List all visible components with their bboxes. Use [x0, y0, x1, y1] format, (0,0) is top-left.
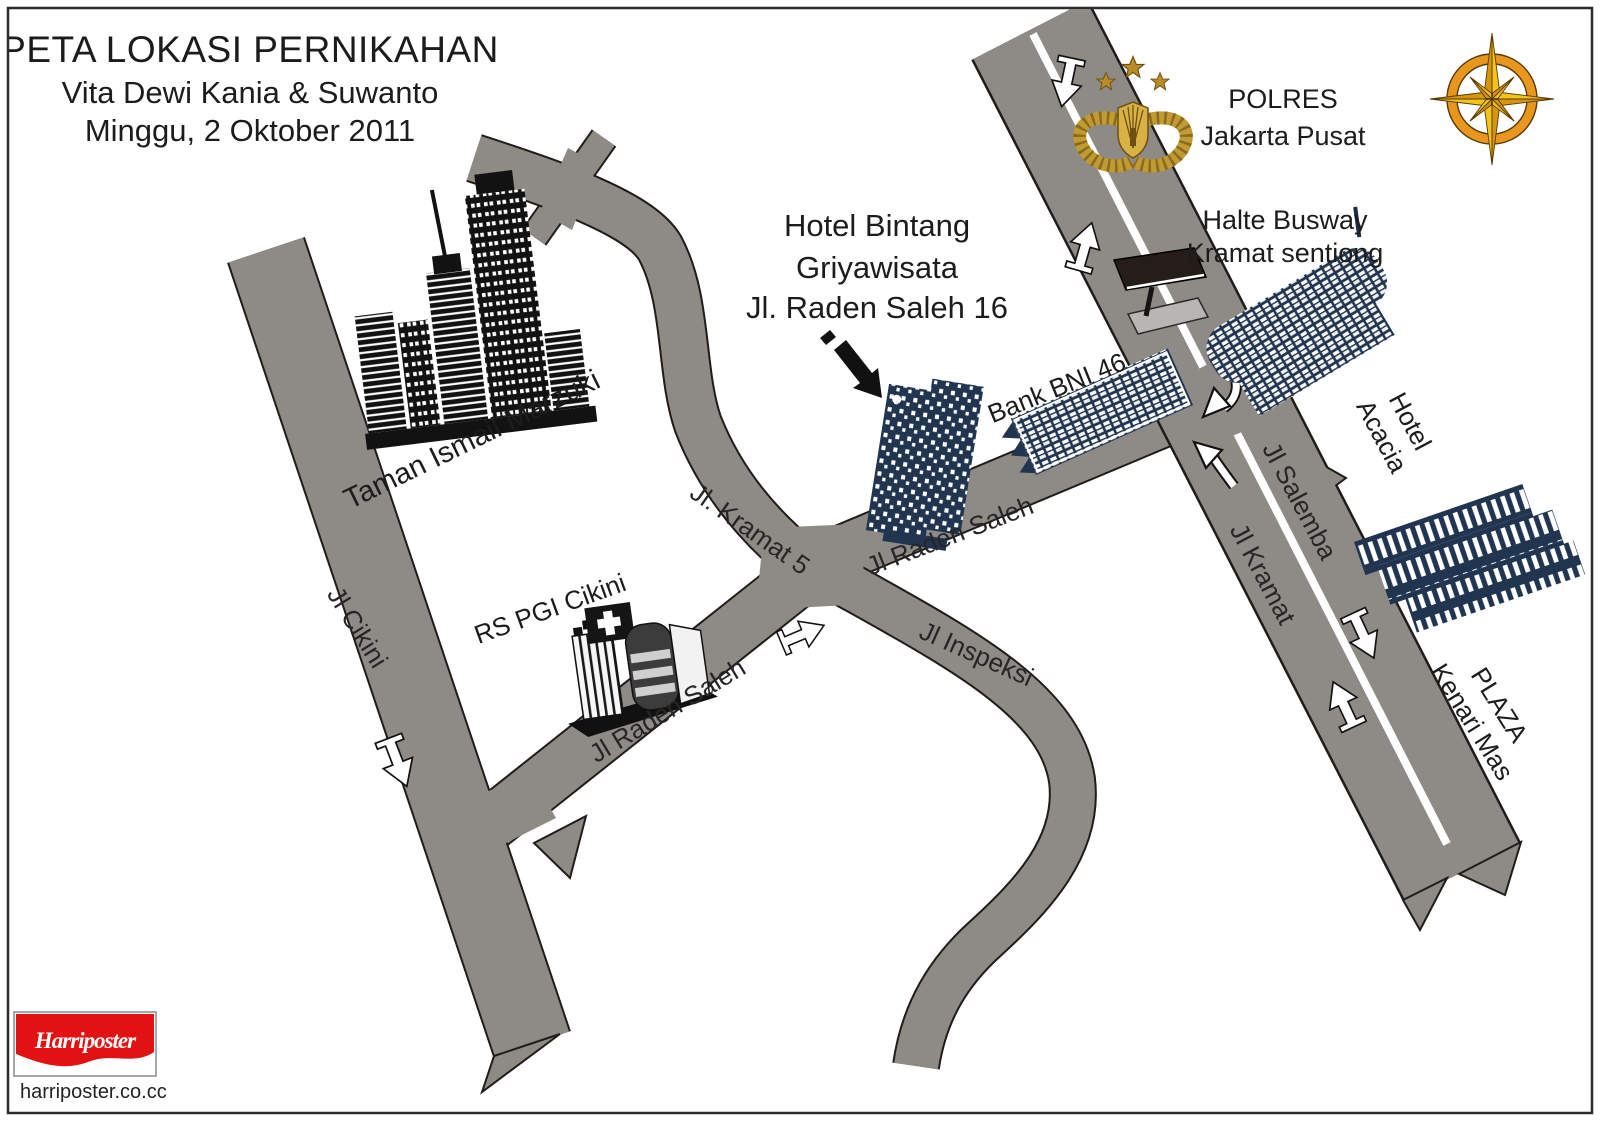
hotel-bintang-label-3: Jl. Raden Saleh 16 — [746, 290, 1008, 325]
hotel-bintang-label-2: Griyawisata — [796, 250, 959, 285]
website-url: harriposter.co.cc — [20, 1081, 167, 1103]
polres-label-1: POLRES — [1228, 84, 1338, 114]
title-line-1: PETA LOKASI PERNIKAHAN — [1, 29, 499, 70]
halte-busway-label-2: Kramat sentiong — [1187, 238, 1384, 268]
polres-label-2: Jakarta Pusat — [1200, 121, 1366, 151]
wedding-location-map: PETA LOKASI PERNIKAHAN Vita Dewi Kania &… — [0, 0, 1600, 1121]
harriposter-logo: Harriposter harriposter.co.cc — [14, 1012, 167, 1103]
title-line-3: Minggu, 2 Oktober 2011 — [85, 113, 415, 148]
halte-busway-label-1: Halte Busway — [1202, 205, 1368, 235]
hotel-bintang-label-1: Hotel Bintang — [784, 208, 970, 243]
logo-wordmark: Harriposter — [34, 1028, 137, 1053]
title-line-2: Vita Dewi Kania & Suwanto — [62, 75, 439, 110]
map-canvas: PETA LOKASI PERNIKAHAN Vita Dewi Kania &… — [0, 0, 1600, 1121]
